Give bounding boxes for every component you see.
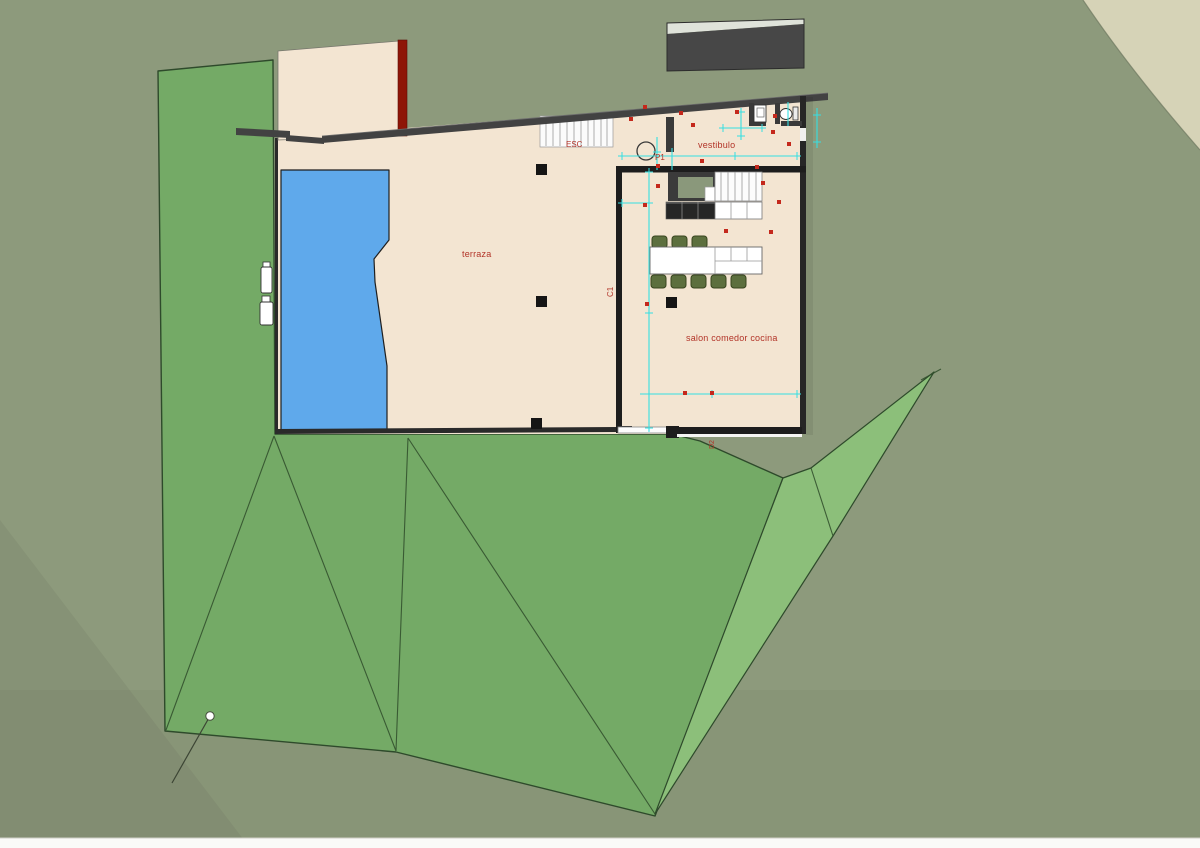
counter-white bbox=[715, 202, 762, 219]
roof-slab bbox=[667, 19, 804, 71]
bathroom-wall-mid bbox=[775, 103, 780, 124]
column bbox=[536, 296, 547, 307]
section-c1-label: C1 bbox=[606, 286, 615, 297]
column bbox=[531, 418, 542, 429]
chair bbox=[651, 275, 666, 288]
chair bbox=[652, 236, 667, 248]
toilet-bowl bbox=[780, 109, 792, 120]
door-p1-wall-stub bbox=[666, 117, 674, 152]
lounger-pillow bbox=[262, 296, 270, 302]
pool bbox=[281, 170, 389, 430]
salon-top-wall bbox=[616, 166, 806, 173]
chair bbox=[692, 236, 707, 248]
living-kitchen-label: salon comedor cocina bbox=[686, 333, 778, 343]
stairs-label: ESC bbox=[566, 140, 583, 149]
salon-bottom-window bbox=[618, 427, 668, 433]
chair bbox=[711, 275, 726, 288]
chair bbox=[691, 275, 706, 288]
vestibule-label: vestibulo bbox=[698, 140, 735, 150]
chair bbox=[731, 275, 746, 288]
interior-stairs bbox=[668, 172, 762, 201]
stair-first-step bbox=[705, 187, 715, 201]
chair bbox=[672, 236, 687, 248]
building-shadow-right bbox=[806, 97, 813, 435]
terrace-left-wall bbox=[275, 138, 278, 434]
site-plan-render: terraza vestibulo salon comedor cocina E… bbox=[0, 0, 1200, 848]
salon-bottom-wall bbox=[677, 427, 802, 434]
salon-left-wall bbox=[616, 166, 622, 433]
page-edge-strip bbox=[0, 838, 1200, 848]
door-p1-label: P1 bbox=[655, 153, 665, 162]
survey-point bbox=[206, 712, 214, 720]
salon-bottom-sill bbox=[677, 434, 802, 437]
door-d2-label: D2 bbox=[709, 440, 716, 449]
terrace-label: terraza bbox=[462, 249, 491, 259]
right-wall-window-gap bbox=[800, 128, 806, 141]
lounger bbox=[260, 302, 273, 325]
column bbox=[536, 164, 547, 175]
kitchen-counter bbox=[666, 202, 762, 219]
chair bbox=[671, 275, 686, 288]
dining-table bbox=[650, 247, 762, 274]
salon-right-wall bbox=[800, 96, 806, 434]
toilet-tank bbox=[793, 107, 798, 120]
bathroom-wall-bottom-right bbox=[781, 121, 802, 126]
stair-flight-interior bbox=[715, 172, 762, 201]
counter-dark bbox=[666, 202, 715, 219]
column bbox=[666, 297, 677, 308]
lounger bbox=[261, 267, 272, 293]
accent-wall-red bbox=[398, 40, 407, 136]
upper-wall-panel bbox=[278, 41, 399, 140]
